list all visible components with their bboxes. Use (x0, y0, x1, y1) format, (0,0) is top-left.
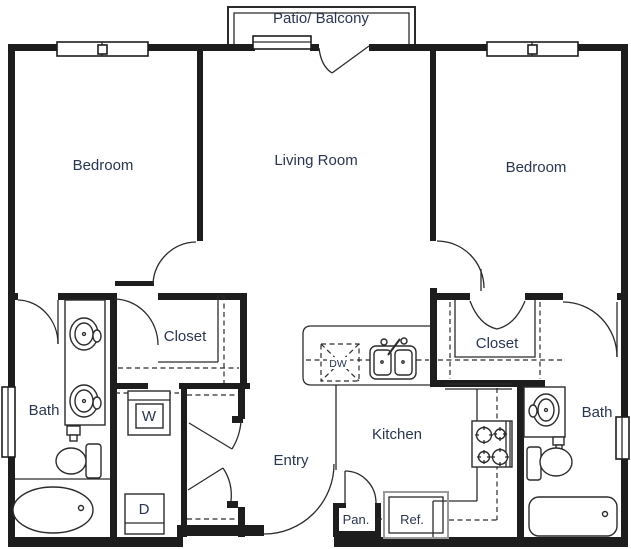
patio-door-swing (319, 46, 369, 73)
dishwasher: DW (321, 344, 359, 381)
refrigerator-icon: Ref. (377, 492, 448, 538)
floorplan-canvas: DW Ref. Pan. W (0, 0, 631, 549)
hall-closet-doors (188, 421, 241, 501)
vanity-right (524, 387, 565, 450)
pantry-label: Pan. (343, 512, 370, 527)
hall-left-door-swing (114, 299, 158, 345)
kitchen-sink-icon (370, 338, 416, 379)
toilet-right-icon (527, 447, 572, 480)
entry-door-swing (264, 464, 334, 534)
refrigerator-label: Ref. (400, 512, 424, 527)
closet-right-double-doors (470, 301, 525, 329)
washer-label: W (142, 408, 157, 425)
bathtub-right-icon (529, 497, 617, 536)
room-label-closet-left: Closet (164, 328, 207, 345)
bath-right-door-swing (563, 302, 617, 357)
stove-icon (472, 421, 512, 467)
window-patio (253, 36, 311, 49)
bedroom-right-door-swing (437, 241, 484, 291)
room-label-patio: Patio/ Balcony (273, 10, 369, 27)
window-bedroom-right (487, 42, 578, 56)
room-label-bedroom-left: Bedroom (73, 157, 134, 174)
room-label-bath-left: Bath (29, 402, 60, 419)
dishwasher-label: DW (329, 358, 347, 370)
washer-icon: W (128, 391, 170, 435)
dryer-icon: D (125, 494, 164, 534)
room-label-closet-right: Closet (476, 335, 519, 352)
bedroom-left-door-swing (153, 242, 196, 284)
room-label-living-room: Living Room (274, 152, 357, 169)
room-label-bath-right: Bath (582, 404, 613, 421)
bath-left-door-swing (18, 300, 58, 344)
room-label-kitchen: Kitchen (372, 426, 422, 443)
room-label-entry: Entry (273, 452, 309, 469)
window-bedroom-left (57, 42, 148, 56)
room-label-bedroom-right: Bedroom (506, 159, 567, 176)
dryer-label: D (139, 501, 150, 518)
pantry-door-swing (345, 471, 376, 503)
bathtub-left-icon (13, 479, 110, 533)
window-bath-right (616, 417, 629, 459)
toilet-left-icon (56, 444, 101, 478)
floorplan-drawing: DW Ref. Pan. W (0, 0, 631, 549)
window-bath-left (2, 387, 15, 457)
vanity-left (65, 300, 105, 441)
